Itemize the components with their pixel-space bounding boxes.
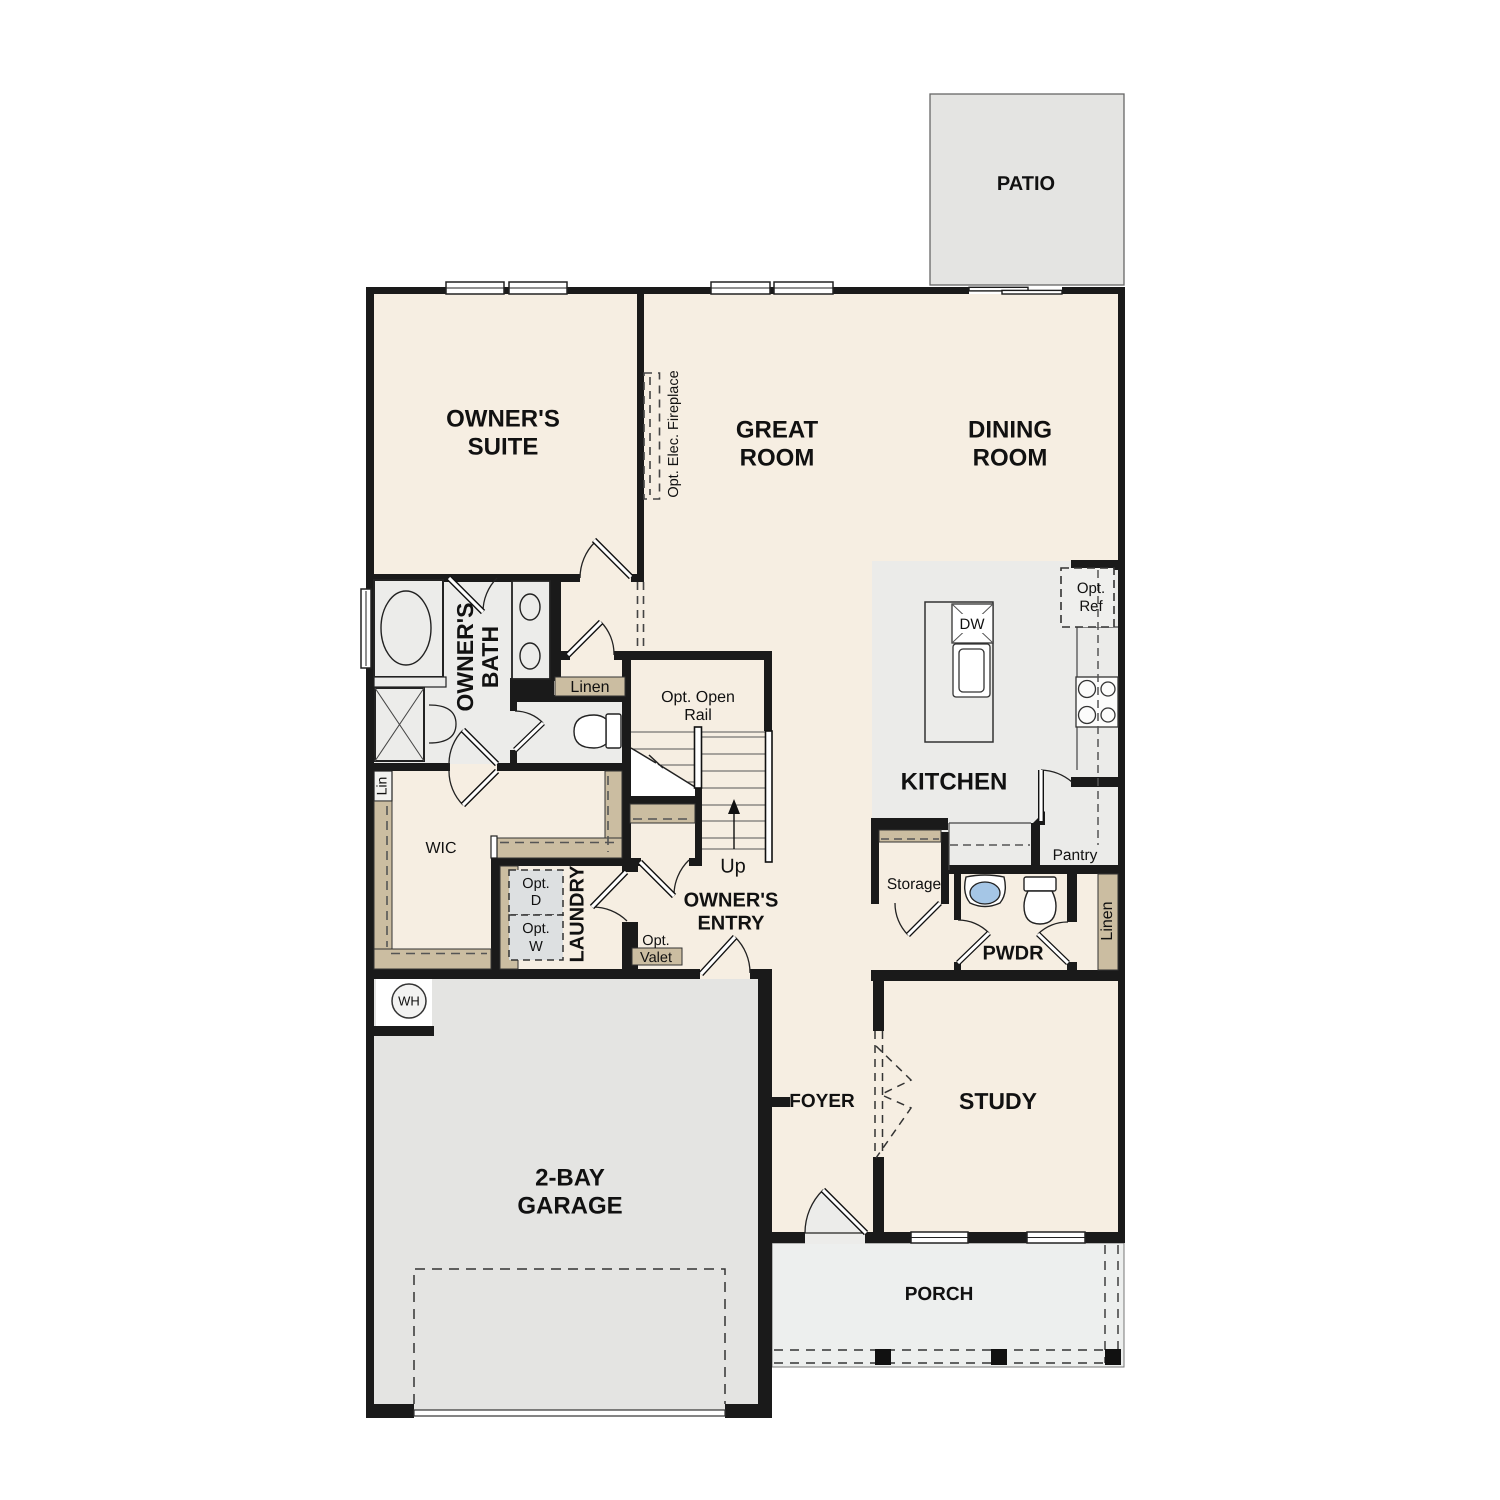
svg-text:KITCHEN: KITCHEN	[901, 768, 1008, 795]
svg-text:D: D	[531, 893, 541, 909]
svg-text:2-BAY: 2-BAY	[535, 1164, 605, 1191]
svg-text:STUDY: STUDY	[959, 1088, 1037, 1114]
svg-text:ENTRY: ENTRY	[697, 912, 765, 934]
svg-text:OWNER'S: OWNER'S	[684, 889, 779, 911]
svg-text:BATH: BATH	[477, 626, 503, 688]
svg-text:Pantry: Pantry	[1053, 847, 1098, 864]
svg-text:Opt.: Opt.	[1077, 580, 1105, 597]
svg-text:Opt.: Opt.	[642, 933, 669, 949]
svg-text:WH: WH	[398, 993, 420, 1008]
svg-text:WIC: WIC	[425, 840, 456, 857]
svg-text:Rail: Rail	[684, 707, 712, 724]
svg-text:Lin: Lin	[374, 777, 390, 796]
svg-text:Linen: Linen	[570, 679, 609, 696]
svg-text:SUITE: SUITE	[468, 433, 539, 460]
svg-text:OWNER'S: OWNER'S	[452, 603, 478, 712]
svg-text:PWDR: PWDR	[982, 942, 1044, 964]
svg-text:ROOM: ROOM	[973, 444, 1048, 471]
svg-text:DINING: DINING	[968, 416, 1052, 443]
svg-text:Opt.: Opt.	[522, 876, 549, 892]
svg-text:Opt.: Opt.	[522, 921, 549, 937]
svg-text:PORCH: PORCH	[905, 1284, 974, 1305]
svg-text:OWNER'S: OWNER'S	[446, 405, 560, 432]
svg-text:W: W	[529, 939, 543, 955]
svg-text:Opt. Elec. Fireplace: Opt. Elec. Fireplace	[666, 370, 682, 497]
svg-text:Storage: Storage	[887, 876, 941, 893]
svg-text:LAUNDRY: LAUNDRY	[566, 865, 588, 963]
svg-text:GREAT: GREAT	[736, 416, 819, 443]
svg-text:Opt. Open: Opt. Open	[661, 689, 735, 706]
svg-text:DW: DW	[960, 616, 986, 633]
svg-text:ROOM: ROOM	[740, 444, 815, 471]
svg-text:Ref: Ref	[1079, 598, 1103, 615]
svg-text:GARAGE: GARAGE	[517, 1192, 622, 1219]
svg-text:FOYER: FOYER	[789, 1091, 855, 1112]
svg-text:Linen: Linen	[1099, 901, 1116, 940]
svg-text:Valet: Valet	[640, 950, 672, 966]
svg-text:Up: Up	[720, 855, 746, 877]
svg-text:PATIO: PATIO	[997, 173, 1055, 195]
